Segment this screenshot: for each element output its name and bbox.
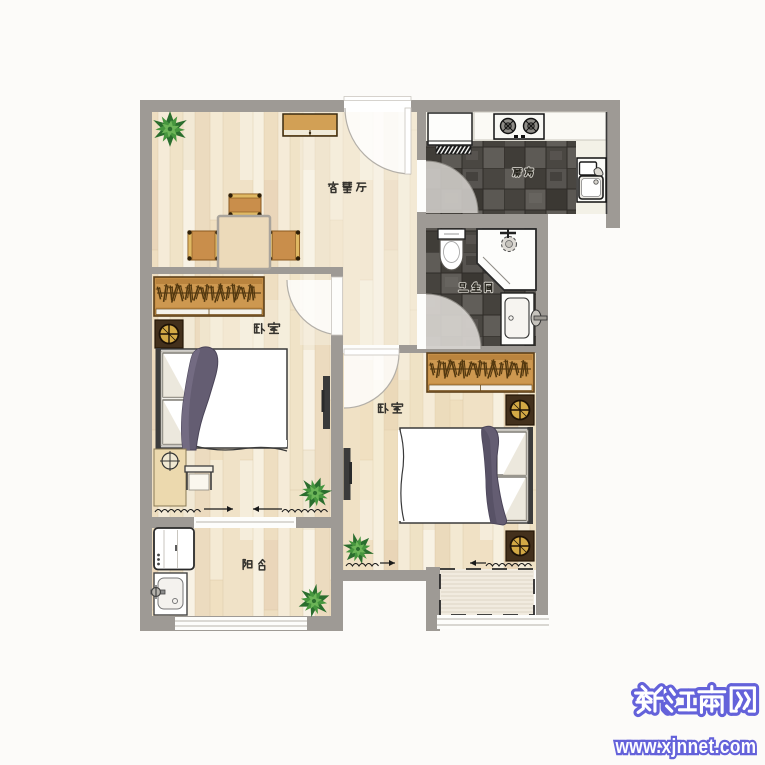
svg-text:www.xjnnet.com: www.xjnnet.com <box>615 736 757 759</box>
